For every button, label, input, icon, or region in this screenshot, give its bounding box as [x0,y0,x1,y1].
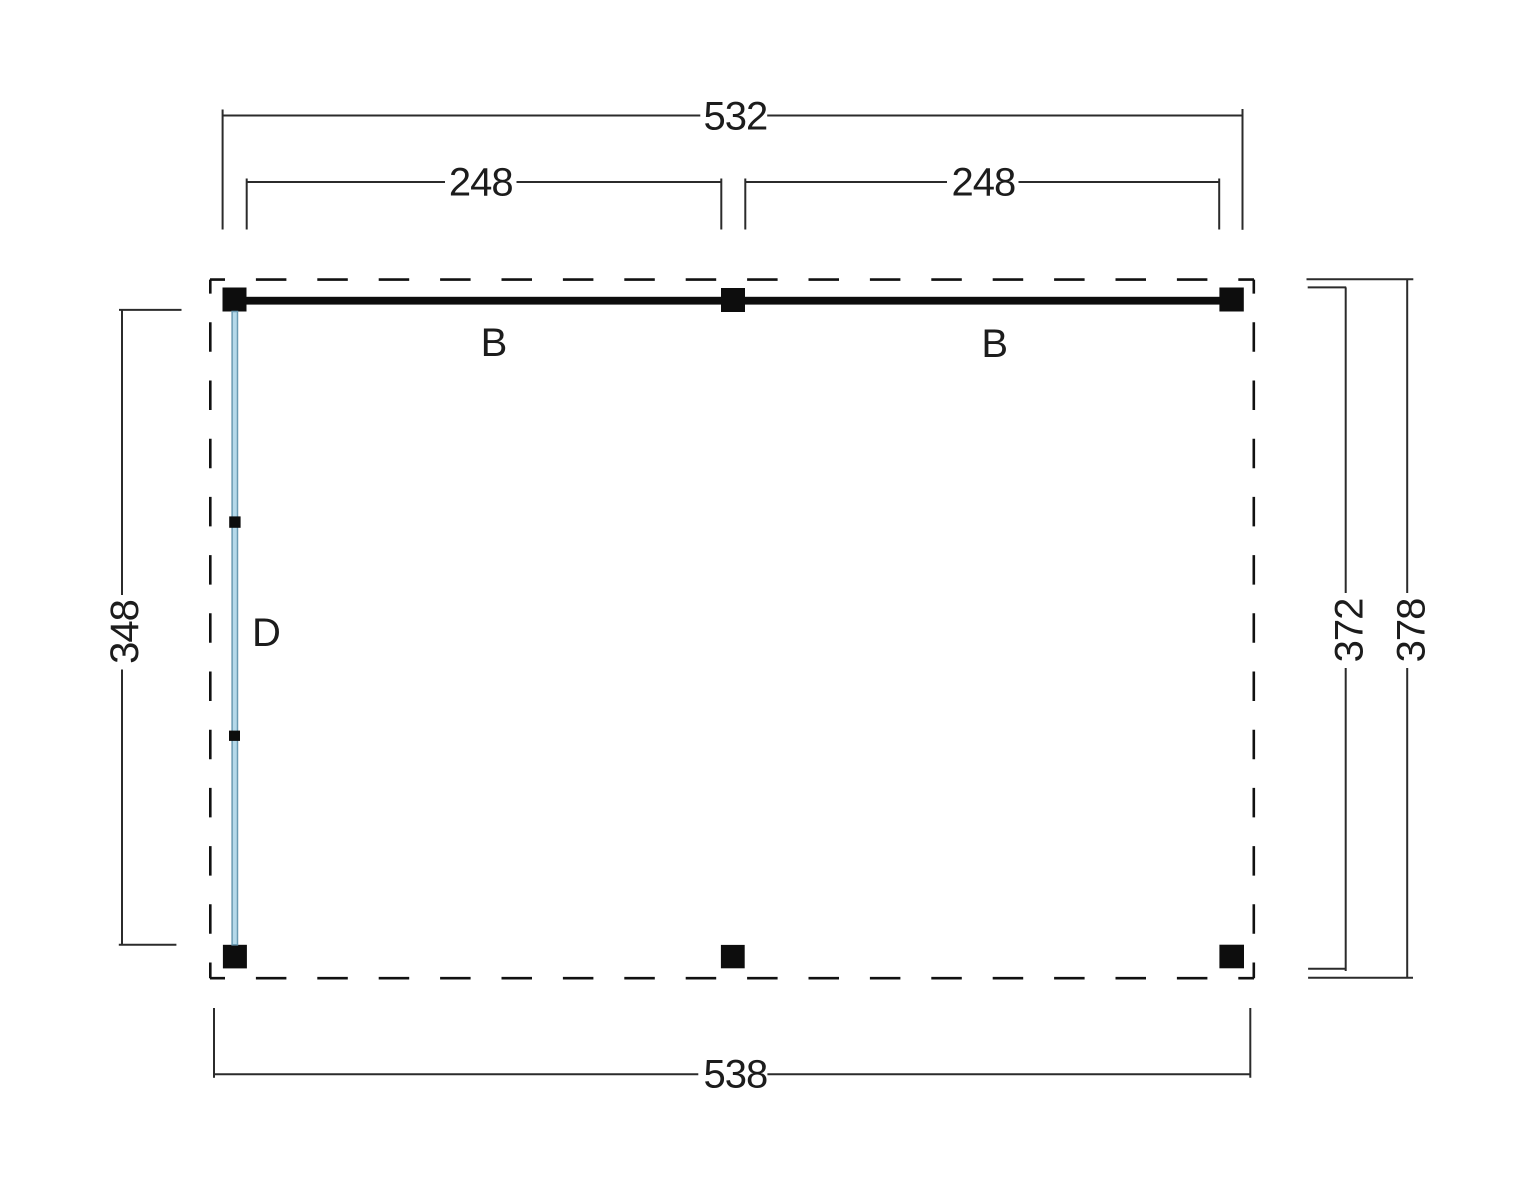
svg-text:B: B [981,322,1008,366]
svg-text:248: 248 [449,161,513,205]
svg-text:248: 248 [952,161,1016,205]
svg-text:D: D [252,611,281,655]
svg-text:348: 348 [103,600,147,664]
svg-text:B: B [481,321,508,365]
svg-text:532: 532 [704,95,768,139]
svg-text:372: 372 [1327,599,1371,663]
svg-text:538: 538 [704,1053,768,1097]
svg-text:378: 378 [1390,599,1434,663]
